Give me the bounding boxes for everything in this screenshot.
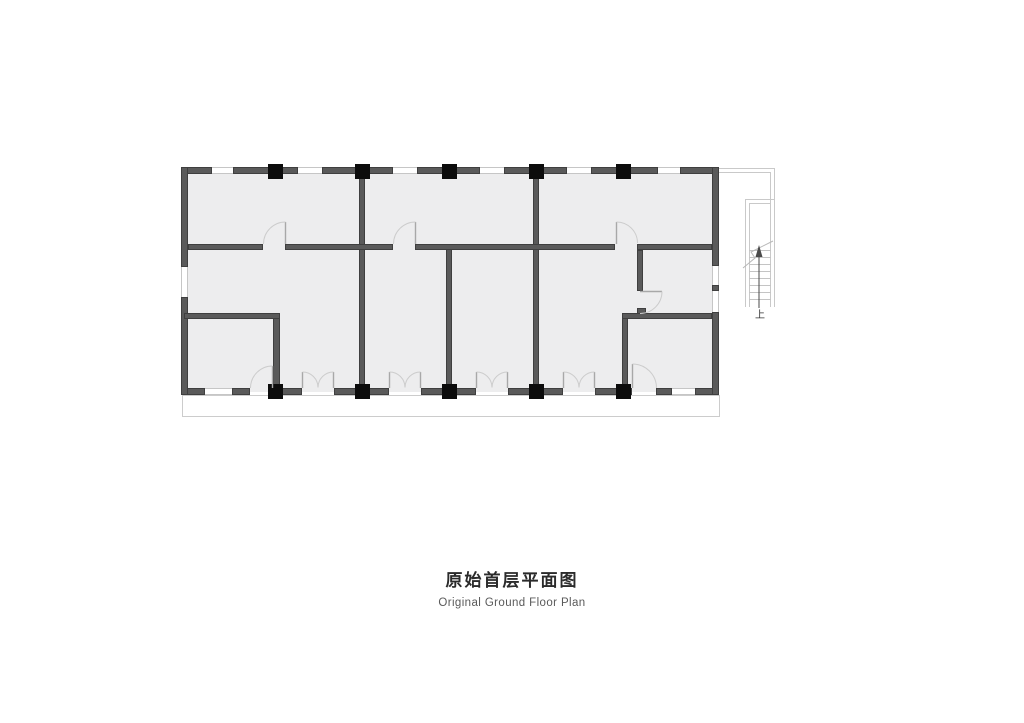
stair-treads [749,251,771,300]
staircase [719,168,775,307]
stair-up-label: 上 [752,310,768,321]
floor-plan: 上 [0,0,1024,723]
plan-title-en: Original Ground Floor Plan [0,597,1024,609]
up-arrow-icon [756,245,763,308]
door-swing-arcs [251,222,663,388]
plan-annotations [0,0,1024,723]
caption-block: 原始首层平面图 Original Ground Floor Plan [0,566,1024,609]
door-leaves [273,222,663,388]
plan-title-zh: 原始首层平面图 [0,566,1024,591]
